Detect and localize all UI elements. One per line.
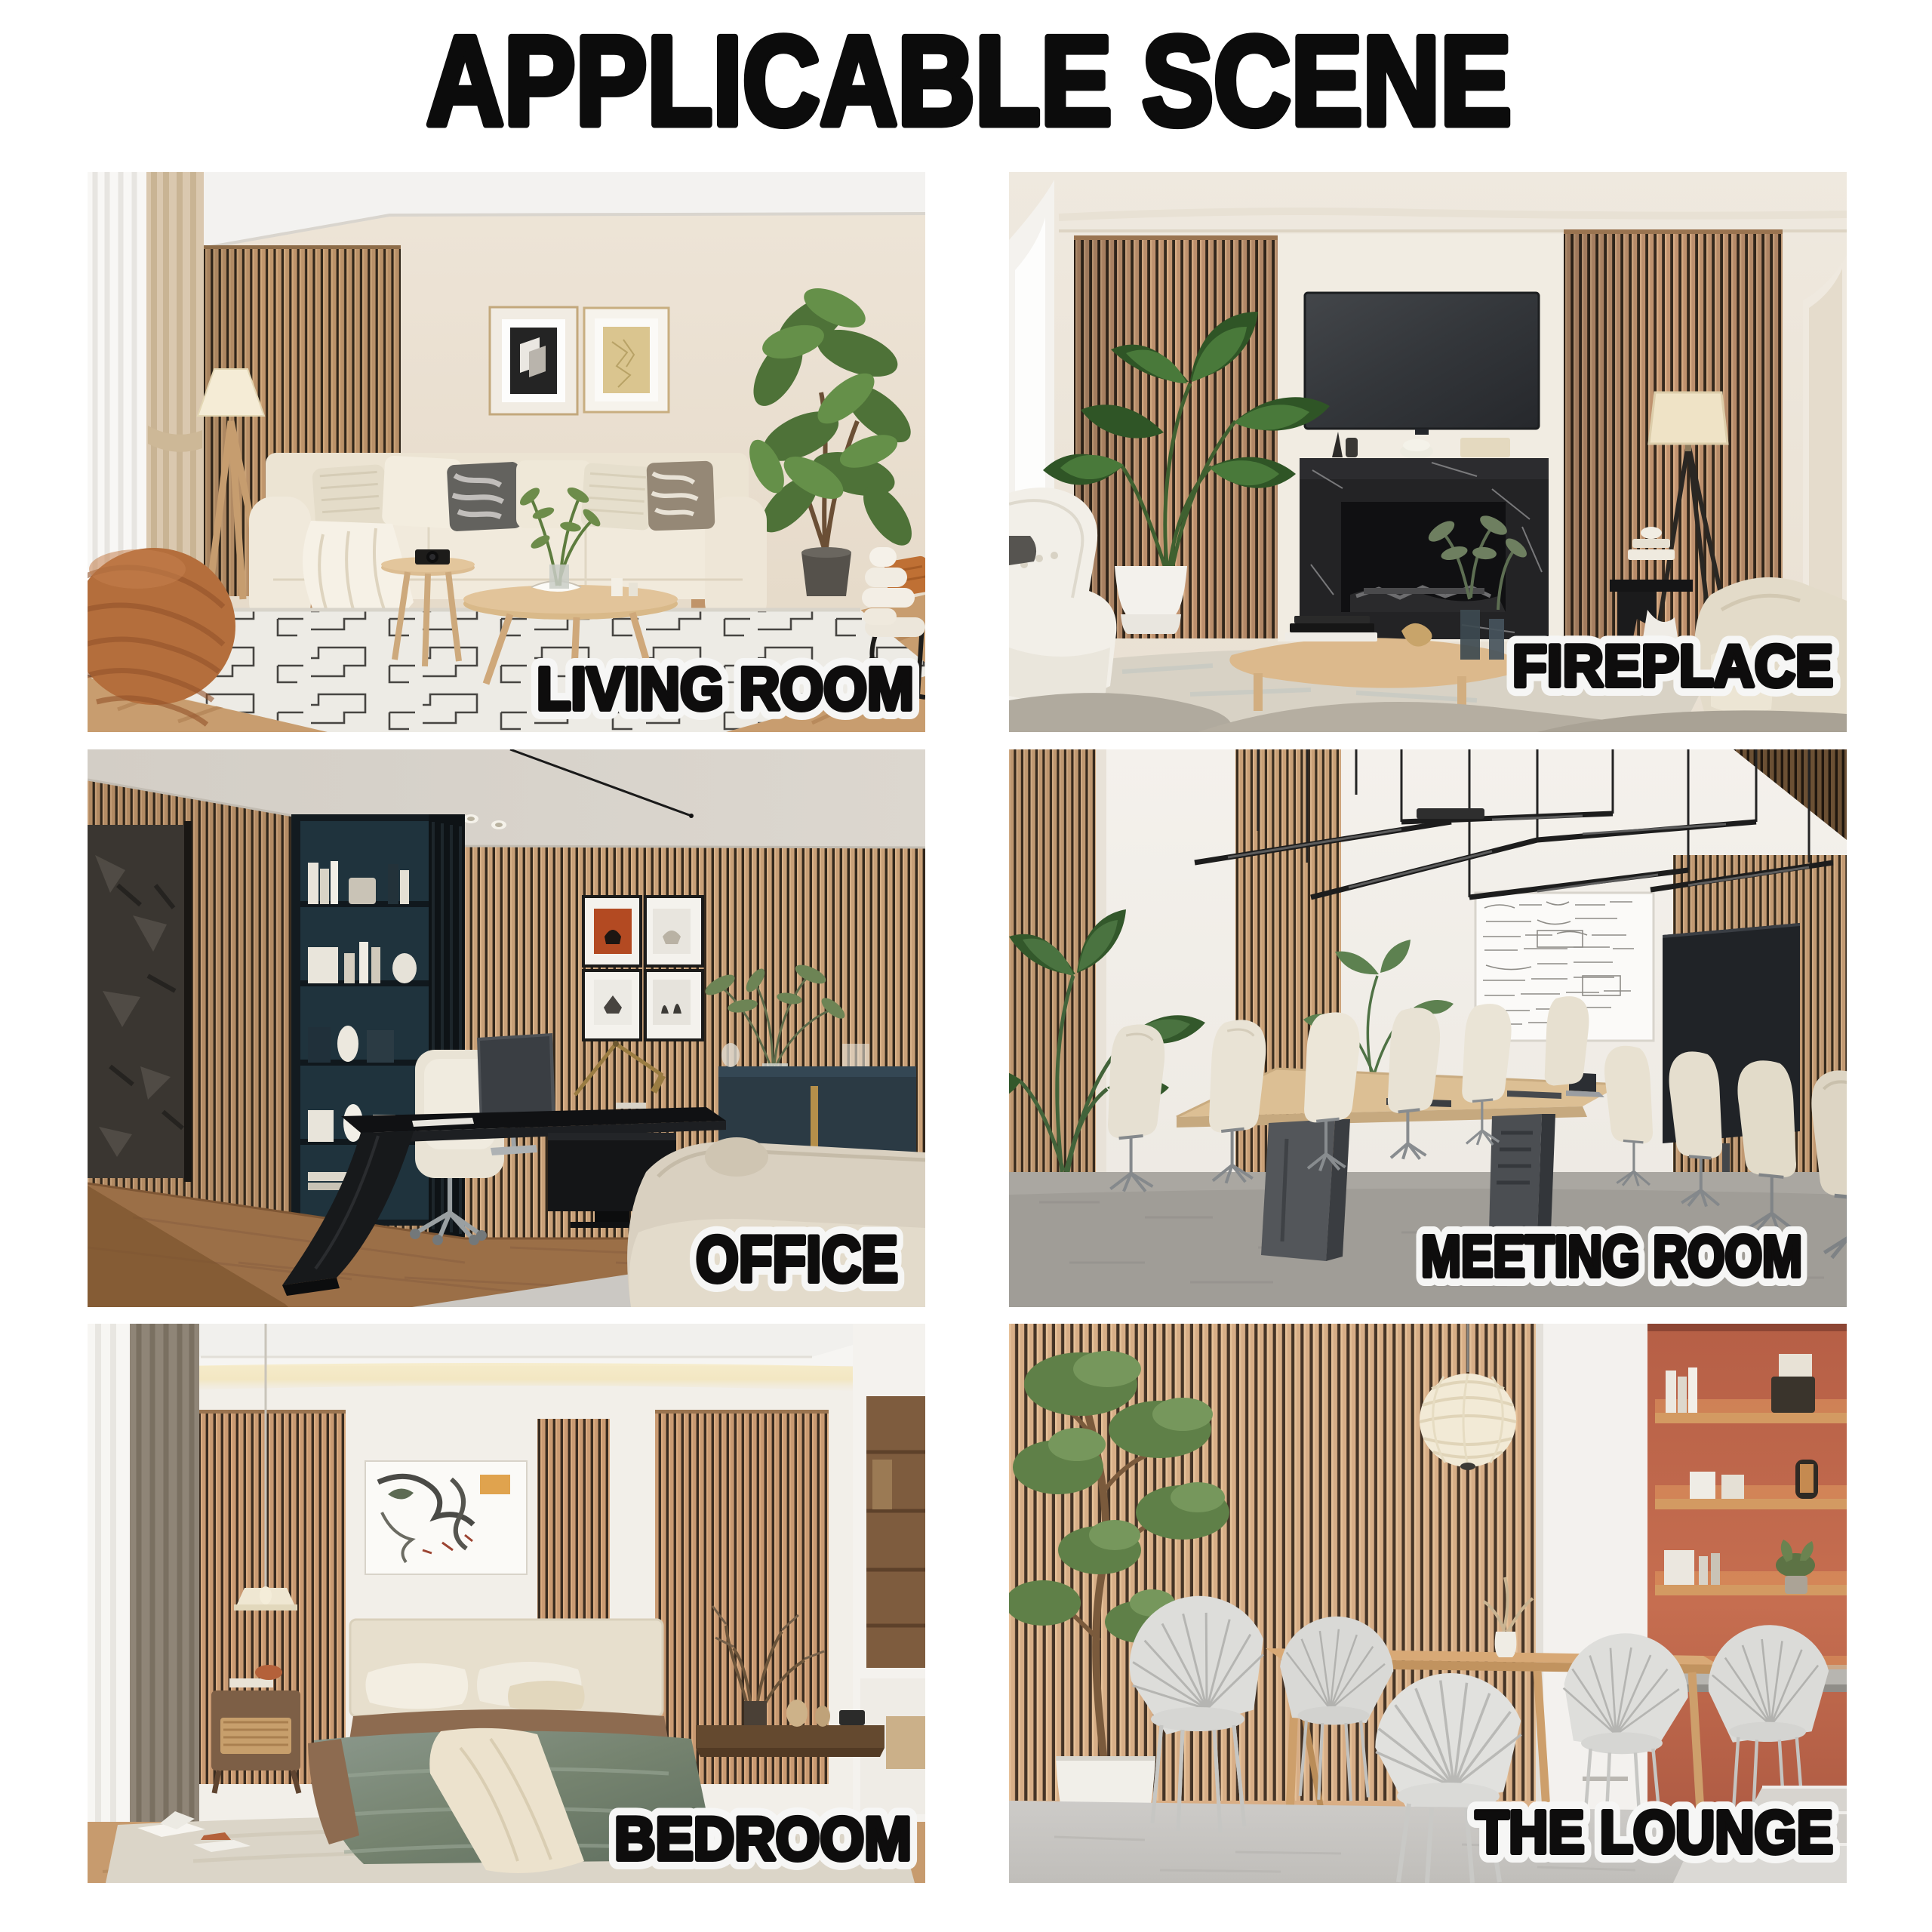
svg-text:APPLICABLE SCENE: APPLICABLE SCENE	[426, 10, 1512, 152]
svg-text:BEDROOM: BEDROOM	[614, 1805, 912, 1873]
svg-text:FIREPLACE: FIREPLACE	[1512, 632, 1833, 699]
svg-text:OFFICE: OFFICE	[696, 1223, 898, 1296]
svg-text:MEETING ROOM: MEETING ROOM	[1421, 1224, 1802, 1289]
svg-text:LIVING ROOM: LIVING ROOM	[537, 655, 914, 722]
svg-text:THE LOUNGE: THE LOUNGE	[1475, 1798, 1833, 1866]
